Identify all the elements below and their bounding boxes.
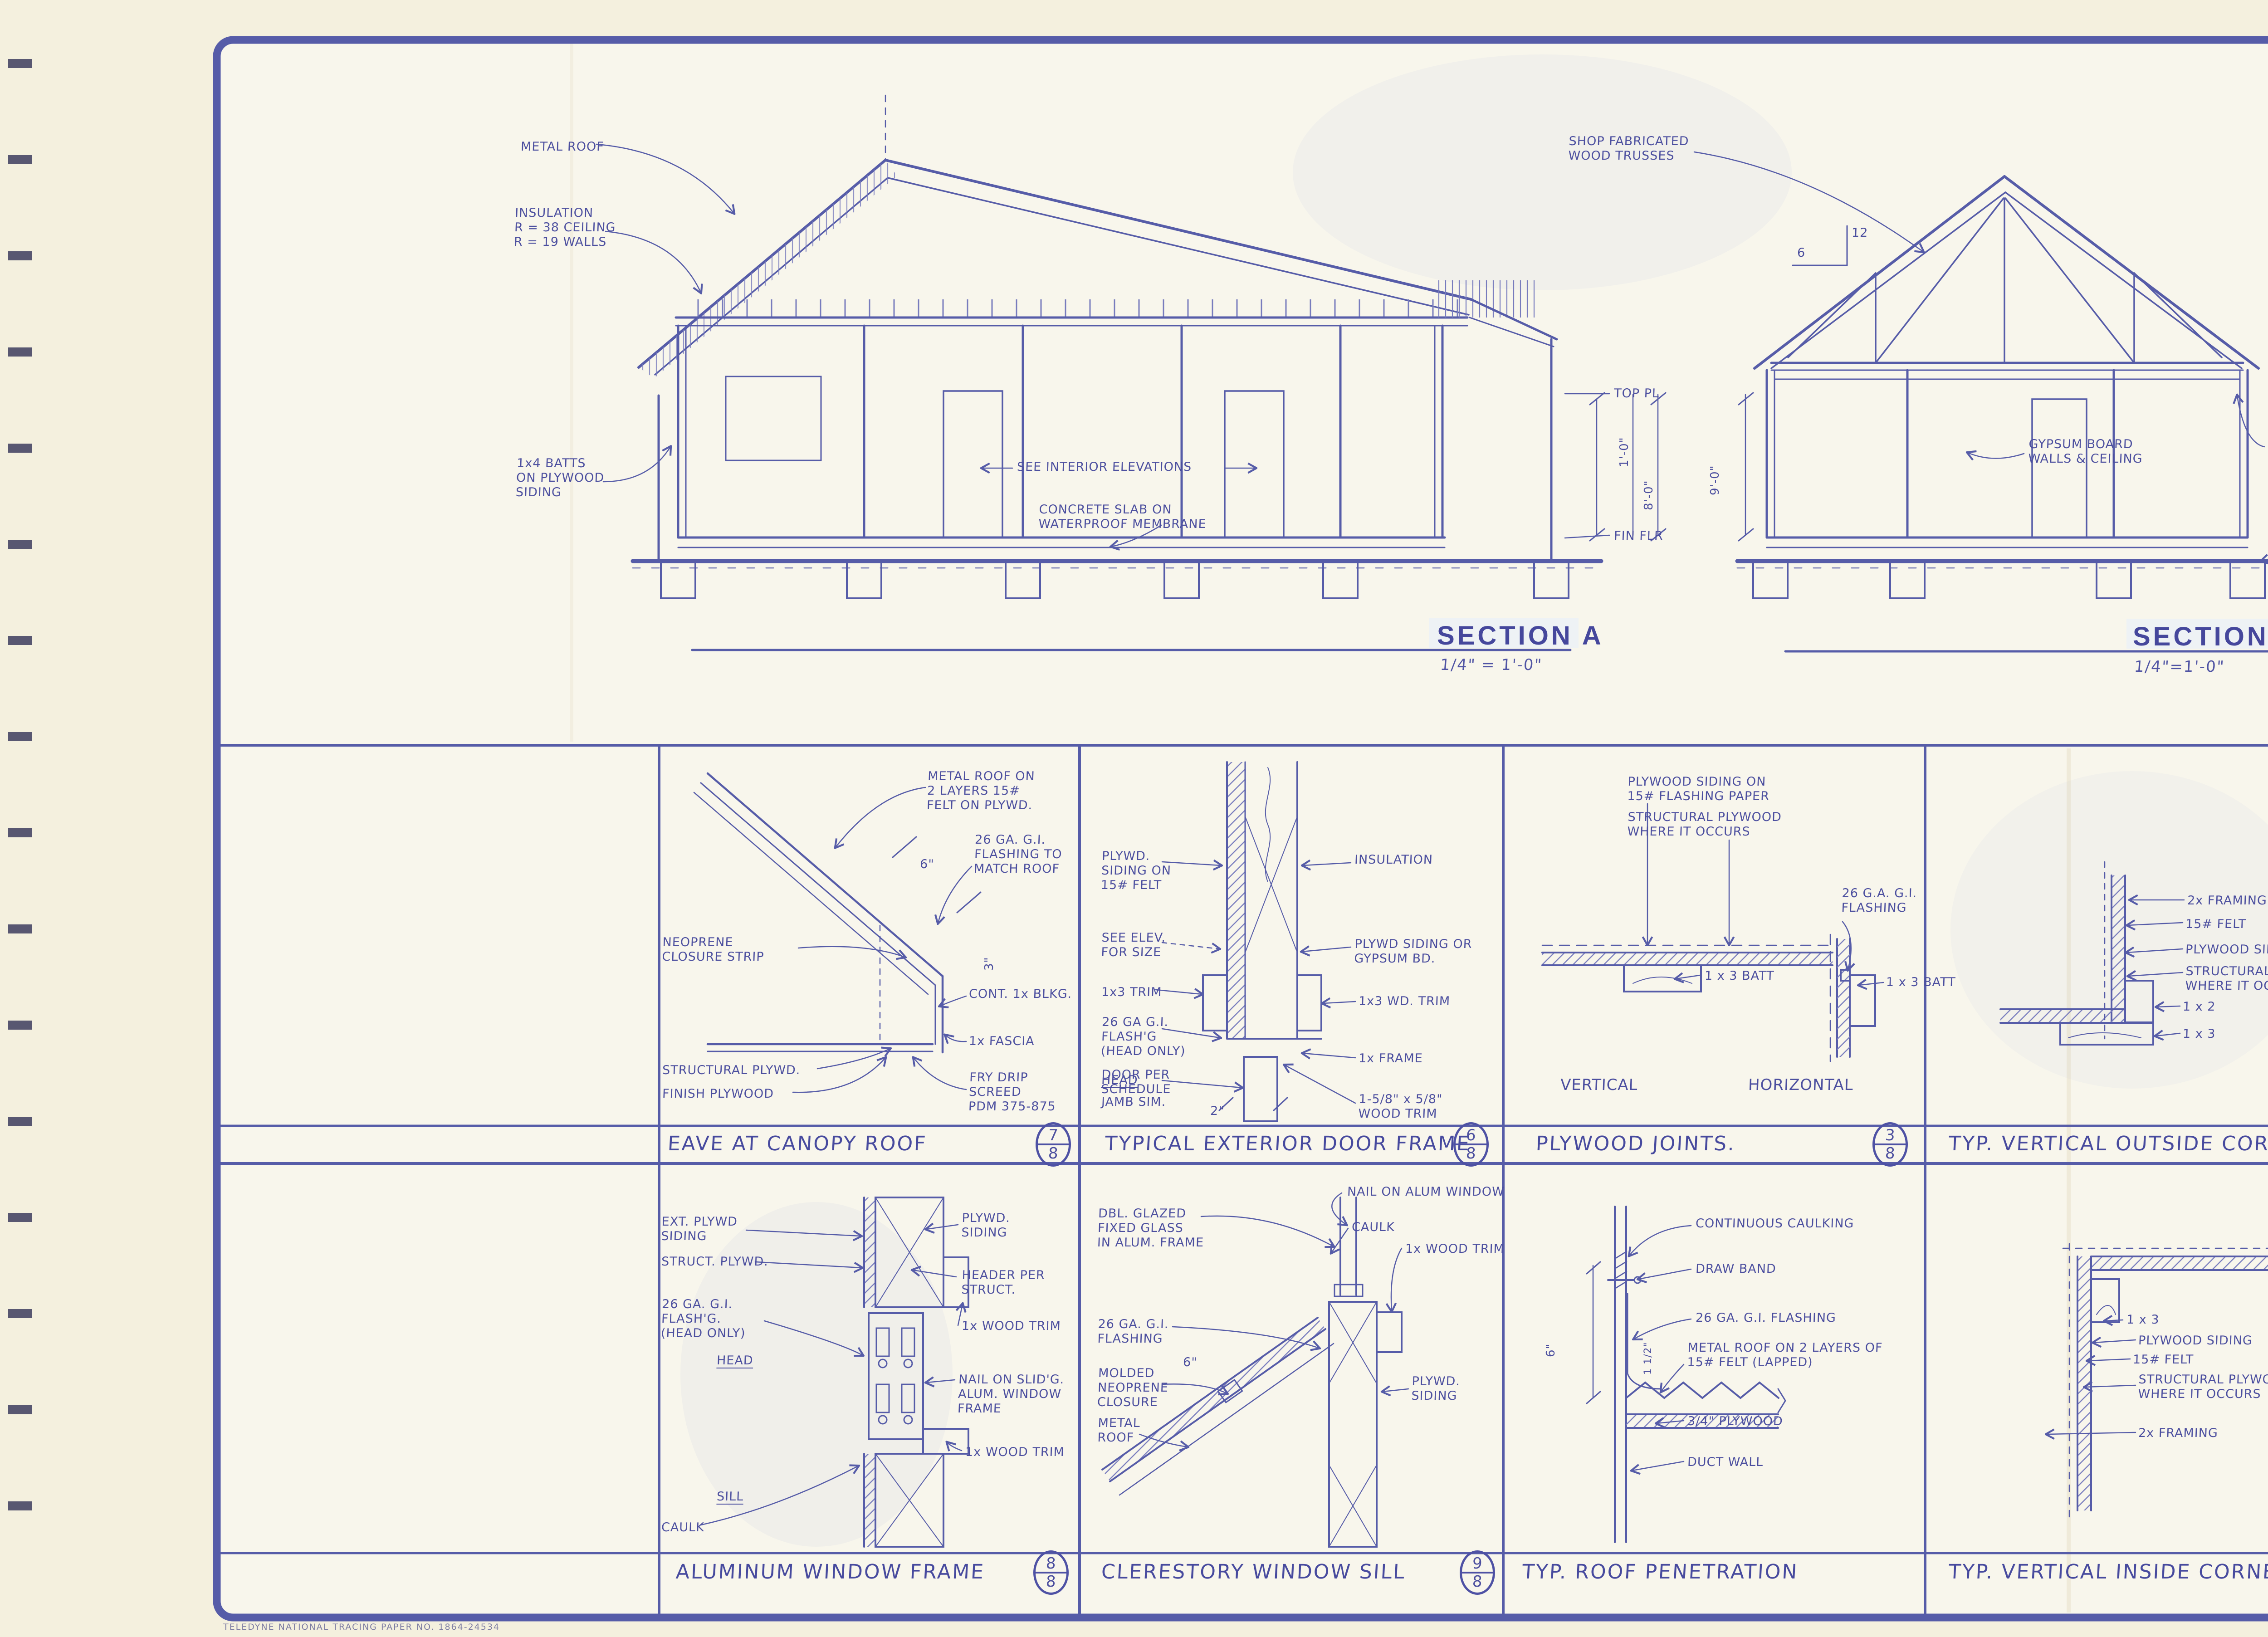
- annotation: 1 x 3 BATT: [1704, 969, 1774, 983]
- annotation: 1x WOOD TRIM: [1405, 1242, 1505, 1256]
- annotation: PLYWOOD SIDING: [2138, 1334, 2253, 1348]
- annotation: NAIL ON SLID'G. ALUM. WINDOW FRAME: [957, 1373, 1064, 1416]
- annotation: DRAW BAND: [1695, 1262, 1776, 1276]
- annotation: 1x3 TRIM: [1101, 985, 1162, 1000]
- detail-title: EAVE AT CANOPY ROOF: [667, 1132, 928, 1155]
- annotation: PLYWD. SIDING: [961, 1211, 1011, 1240]
- annotation: 2x FRAMING: [2138, 1426, 2218, 1441]
- detail-number: 9: [1472, 1554, 1483, 1573]
- annotation: 1 x 3: [2126, 1313, 2160, 1327]
- annotation: DUCT WALL: [1687, 1455, 1763, 1470]
- annotation: CONCRETE SLAB ON WATERPROOF MEMBRANE: [1038, 503, 1207, 532]
- annotation: PLYWOOD SIDING: [2185, 943, 2268, 957]
- annotation: SHOP FABRICATED WOOD TRUSSES: [1568, 134, 1689, 163]
- annotation: GYPSUM BOARD WALLS & CEILING: [2028, 437, 2143, 466]
- annotation: 2x FRAMING: [2187, 894, 2267, 908]
- view-label: JAMB SIM.: [1101, 1095, 1166, 1109]
- sheet-number: 8: [1046, 1573, 1056, 1591]
- annotation: TOP PL: [1613, 386, 1659, 401]
- annotation: 1x3 WD. TRIM: [1358, 994, 1450, 1009]
- detail-number: 7: [1048, 1126, 1059, 1144]
- detail-title: TYP. VERTICAL INSIDE CORNER.: [1948, 1560, 2268, 1583]
- blueprint-sheet: SECTION A 1/4" = 1'-0" SECTION B 1/4"=1'…: [0, 0, 2268, 1637]
- annotation: HEADER PER STRUCT.: [961, 1268, 1045, 1297]
- dimension: 9'-0": [1708, 465, 1722, 495]
- section-b-title: SECTION B: [2133, 621, 2268, 652]
- dimension: 2": [1210, 1104, 1225, 1119]
- detail-title: TYPICAL EXTERIOR DOOR FRAME: [1105, 1132, 1471, 1155]
- annotation: MOLDED NEOPRENE CLOSURE: [1097, 1366, 1169, 1410]
- annotation: STRUCTURAL PLYWOOD WHERE IT OCCURS: [2138, 1373, 2268, 1402]
- annotation: 26 GA. G.I. FLASHING TO MATCH ROOF: [973, 833, 1063, 876]
- annotation: CAULK: [661, 1520, 704, 1535]
- annotation: 1-5/8" x 5/8" WOOD TRIM: [1358, 1092, 1443, 1121]
- detail-number: 3: [1885, 1126, 1896, 1144]
- annotation: 1 x 2: [2182, 1000, 2216, 1014]
- annotation: STRUCTURAL PLYWOOD WHERE IT OCCURS: [1627, 810, 1782, 839]
- annotation: SEE ELEV. FOR SIZE: [1101, 931, 1166, 960]
- dimension: 6": [1183, 1355, 1198, 1370]
- detail-ref-bubble: 8 8: [1033, 1550, 1069, 1595]
- detail-number: 8: [1046, 1554, 1056, 1573]
- paper-brand: TELEDYNE NATIONAL TRACING PAPER NO. 1864…: [223, 1622, 500, 1632]
- annotation: METAL ROOF: [1097, 1416, 1140, 1445]
- detail-number: 6: [1466, 1126, 1476, 1144]
- sheet-number: 8: [1466, 1144, 1476, 1163]
- detail-ref-bubble: 9 8: [1460, 1550, 1495, 1595]
- annotation: FRY DRIP SCREED PDM 375-875: [968, 1070, 1057, 1114]
- detail-ref-bubble: 3 8: [1872, 1122, 1908, 1167]
- annotation: 1 x 3: [2182, 1027, 2216, 1041]
- sub-label: VERTICAL: [1560, 1076, 1638, 1094]
- annotation: EXT. PLYWD SIDING: [661, 1215, 738, 1244]
- sheet-number: 8: [1885, 1144, 1896, 1163]
- annotation: CONTINUOUS CAULKING: [1695, 1217, 1854, 1231]
- annotation: FIN FLR: [1613, 529, 1663, 543]
- view-label: HEAD: [1101, 1073, 1138, 1088]
- slope-run: 6: [1797, 246, 1805, 260]
- annotation: PLYWD SIDING OR GYPSUM BD.: [1354, 937, 1472, 966]
- annotation: 1x WOOD TRIM: [965, 1445, 1065, 1460]
- detail-title: CLERESTORY WINDOW SILL: [1101, 1560, 1406, 1583]
- sheet-number: 8: [1472, 1573, 1483, 1591]
- annotation: SEE INTERIOR ELEVATIONS: [1017, 460, 1192, 474]
- section-a-scale: 1/4" = 1'-0": [1440, 656, 1543, 674]
- detail-title: PLYWOOD JOINTS.: [1535, 1132, 1736, 1155]
- detail-ref-bubble: 6 8: [1453, 1122, 1489, 1167]
- annotation: STRUCTURAL PLYWOOD WHERE IT OCCURS.: [2185, 964, 2268, 993]
- annotation: 3/4" PLYWOOD: [1687, 1414, 1783, 1429]
- annotation: NAIL ON ALUM WINDOW: [1347, 1185, 1505, 1199]
- view-label: HEAD: [716, 1354, 753, 1368]
- annotation: FINISH PLYWOOD: [662, 1087, 774, 1101]
- annotation: 26 GA. G.I. FLASH'G. (HEAD ONLY): [660, 1297, 747, 1341]
- dimension: 1'-0": [1618, 437, 1631, 467]
- annotation: 1x FRAME: [1358, 1051, 1423, 1066]
- dimension: 3": [982, 957, 996, 971]
- detail-title: ALUMINUM WINDOW FRAME: [675, 1560, 986, 1583]
- annotation: INSULATION: [1354, 853, 1433, 867]
- detail-title: TYP. ROOF PENETRATION: [1522, 1560, 1799, 1583]
- annotation: 15# FELT: [2132, 1353, 2194, 1367]
- annotation: STRUCTURAL PLYWD.: [662, 1063, 800, 1078]
- annotation: STRUCT. PLYWD.: [661, 1255, 768, 1269]
- annotation: 26 GA G.I. FLASH'G (HEAD ONLY): [1100, 1015, 1187, 1059]
- section-b-scale: 1/4"=1'-0": [2134, 658, 2225, 676]
- detail-ref-bubble: 7 8: [1036, 1122, 1071, 1167]
- annotation: PLYWD. SIDING: [1411, 1374, 1461, 1403]
- sheet-number: 8: [1048, 1144, 1059, 1163]
- annotation: 26 GA. G.I. FLASHING: [1097, 1317, 1169, 1346]
- dimension: 1 1/2": [1642, 1342, 1654, 1375]
- section-a-title: SECTION A: [1437, 621, 1604, 651]
- annotation: CAULK: [1351, 1220, 1395, 1235]
- dimension: 8'-0": [1642, 480, 1656, 510]
- annotation: 1x WOOD TRIM: [961, 1319, 1061, 1334]
- annotation: 26 G.A. G.I. FLASHING: [1841, 886, 1917, 915]
- annotation: 1x4 BATTS ON PLYWOOD SIDING: [515, 456, 605, 500]
- dimension: 6": [1544, 1343, 1558, 1357]
- annotation: INSULATION R = 38 CEILING R = 19 WALLS: [513, 206, 616, 249]
- annotation: 26 GA. G.I. FLASHING: [1695, 1311, 1836, 1325]
- annotation: DBL. GLAZED FIXED GLASS IN ALUM. FRAME: [1097, 1207, 1205, 1250]
- detail-title: TYP. VERTICAL OUTSIDE CORNER: [1948, 1132, 2268, 1155]
- annotation: METAL ROOF ON 2 LAYERS OF 15# FELT (LAPP…: [1687, 1341, 1883, 1370]
- annotation: PLYWOOD SIDING ON 15# FLASHING PAPER: [1627, 775, 1770, 804]
- annotation: CONT. 1x BLKG.: [968, 987, 1072, 1002]
- annotation: 15# FELT: [2185, 917, 2246, 932]
- annotation: METAL ROOF: [520, 140, 604, 154]
- sub-label: HORIZONTAL: [1748, 1076, 1853, 1094]
- annotation: METAL ROOF ON 2 LAYERS 15# FELT ON PLYWD…: [926, 769, 1035, 813]
- dimension: 6": [919, 857, 934, 872]
- annotation: 1x FASCIA: [968, 1034, 1035, 1049]
- annotation: PLYWD. SIDING ON 15# FELT: [1100, 849, 1172, 893]
- slope-rise: 12: [1851, 226, 1868, 240]
- annotation: 1 x 3 BATT: [1886, 975, 1956, 990]
- view-label: SILL: [716, 1490, 743, 1504]
- annotation: NEOPRENE CLOSURE STRIP: [662, 935, 765, 964]
